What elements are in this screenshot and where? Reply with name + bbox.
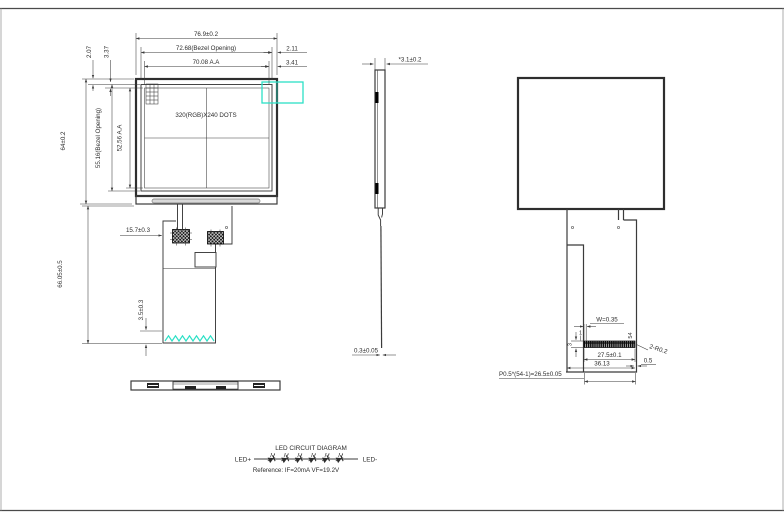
dim-width-aa: 70.08 A.A [145, 59, 270, 67]
side-tape-mark-top [375, 92, 378, 103]
dim-finger-width: W=0.35 [574, 317, 624, 341]
dim-thickness: *3.1±0.2 [362, 57, 428, 65]
dim-width-total: 76.9±0.2 [136, 31, 277, 39]
dim-offset-top-bezel: 2.07 [82, 45, 140, 91]
dim-tail-width: 36.13 [567, 361, 635, 369]
side-tape-mark-bottom [375, 183, 378, 194]
svg-text:W=0.35: W=0.35 [596, 317, 618, 324]
dim-offset-right-bezel: 2.11 [264, 46, 308, 53]
rear-dot-left [571, 226, 573, 228]
dim-offset-right-aa: 3.41 [261, 60, 307, 67]
corner-grid-mark [146, 84, 158, 104]
dim-fpc-thickness: 0.3±0.05 [352, 348, 396, 356]
led-diagram-title: LED CIRCUIT DIAGRAM [275, 445, 347, 452]
svg-text:54: 54 [628, 332, 634, 338]
svg-text:72.68(Bezel Opening): 72.68(Bezel Opening) [176, 45, 236, 52]
svg-text:36.13: 36.13 [594, 361, 610, 368]
svg-text:52.56 A.A: 52.56 A.A [117, 124, 124, 152]
led-symbol [334, 452, 346, 464]
side-fpc [378, 208, 382, 348]
led-cathode-label: LED- [363, 457, 378, 464]
connector-fingers [584, 341, 635, 348]
bottom-slot [152, 199, 260, 203]
front-view: 320(RGB)X240 DOTS 76.9±0.2 72.68(Bezel O… [57, 31, 307, 390]
svg-text:2-R0.2: 2-R0.2 [648, 343, 668, 356]
dim-fpc-offset: 15.7±0.3 [120, 227, 162, 236]
svg-text:76.9±0.2: 76.9±0.2 [194, 31, 219, 38]
resolution-label: 320(RGB)X240 DOTS [175, 112, 236, 119]
bottom-edge-view [131, 381, 280, 390]
dim-pitch-formula: P0.5*(54-1)=26.5±0.05 [499, 371, 636, 385]
led-symbols [266, 452, 346, 464]
hatched-zone [262, 82, 303, 103]
svg-text:55.16(Bezel Opening): 55.16(Bezel Opening) [95, 108, 102, 168]
rear-outline [518, 78, 664, 209]
svg-text:66.05±0.5: 66.05±0.5 [57, 260, 64, 288]
svg-text:0.5: 0.5 [644, 358, 653, 365]
rear-dot-right [617, 226, 619, 228]
pin-54-marker: 54 [628, 332, 634, 338]
led-reference-note: Reference: IF=20mA VF=19.2V [253, 467, 340, 474]
led-symbol [279, 452, 291, 464]
side-view: *3.1±0.2 0.3±0.05 [352, 57, 428, 356]
svg-text:70.08 A.A: 70.08 A.A [193, 59, 221, 66]
svg-text:3.37: 3.37 [104, 45, 111, 58]
led-symbol [293, 452, 305, 464]
led-symbol [320, 452, 332, 464]
fpc-tail [163, 204, 232, 343]
dim-fpc-end: 3.5±0.3 [138, 299, 162, 356]
engineering-drawing-page: 320(RGB)X240 DOTS 76.9±0.2 72.68(Bezel O… [0, 0, 784, 519]
contact-zigzag [165, 336, 214, 341]
rear-view: W=0.35 1 54 3 2-R0.2 27.5±0.1 36.1 [499, 78, 669, 385]
dim-width-bezel: 72.68(Bezel Opening) [141, 45, 272, 53]
fiducial-dot [225, 226, 227, 228]
stiffener-hatch [195, 253, 216, 268]
led-symbol [266, 452, 278, 464]
svg-text:P0.5*(54-1)=26.5±0.05: P0.5*(54-1)=26.5±0.05 [499, 371, 562, 378]
svg-text:0.3±0.05: 0.3±0.05 [354, 348, 379, 355]
svg-text:27.5±0.1: 27.5±0.1 [597, 352, 622, 359]
svg-text:2.11: 2.11 [286, 46, 298, 53]
led-symbol [306, 452, 318, 464]
led-circuit-diagram: LED CIRCUIT DIAGRAM LED+ LED- [235, 445, 377, 474]
fpc-component-2 [208, 230, 224, 247]
svg-text:*3.1±0.2: *3.1±0.2 [398, 57, 422, 64]
page-frame [0, 9, 784, 511]
svg-text:3.5±0.3: 3.5±0.3 [138, 299, 145, 320]
svg-text:3: 3 [568, 343, 574, 346]
lcd-module-drawing: 320(RGB)X240 DOTS 76.9±0.2 72.68(Bezel O… [0, 0, 784, 519]
dim-corner-radius: 2-R0.2 [637, 343, 669, 356]
pin-1-marker: 1 [579, 331, 582, 341]
led-anode-label: LED+ [235, 457, 251, 464]
dim-edge-margin: 0.5 [626, 358, 656, 367]
svg-text:64±0.2: 64±0.2 [60, 131, 67, 150]
svg-text:2.07: 2.07 [86, 45, 93, 58]
fpc-component-1 [170, 228, 192, 246]
dim-height-aa: 52.56 A.A [117, 88, 144, 188]
svg-text:15.7±0.3: 15.7±0.3 [126, 227, 151, 234]
svg-text:3.41: 3.41 [286, 60, 299, 67]
